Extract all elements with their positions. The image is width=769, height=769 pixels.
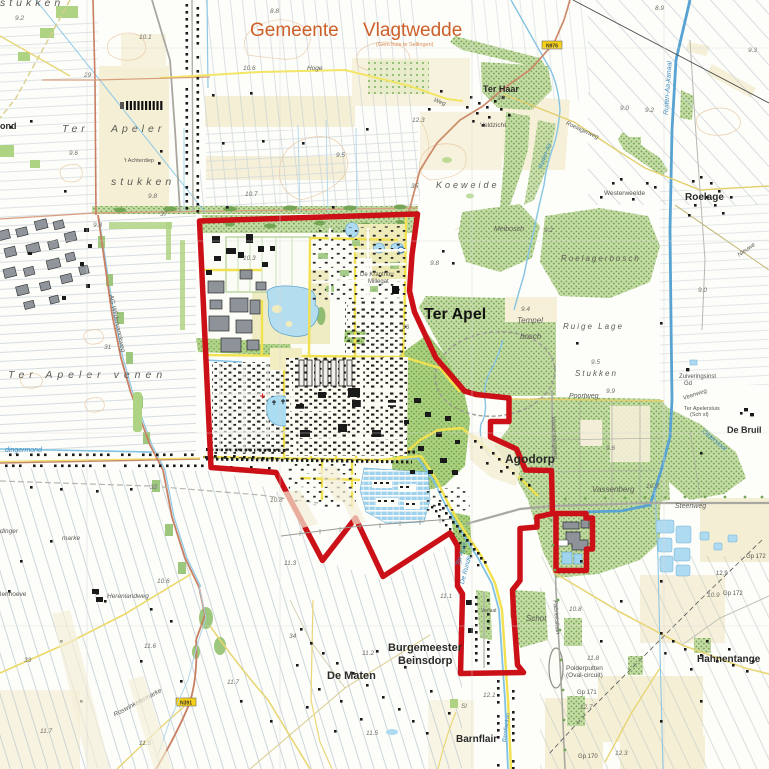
svg-text:N976: N976 [546, 44, 558, 50]
svg-text:Ruige Lage: Ruige Lage [563, 322, 624, 331]
svg-text:De Kranthou: De Kranthou [360, 272, 394, 278]
svg-text:12.1: 12.1 [483, 692, 496, 699]
svg-text:Gp 170: Gp 170 [578, 754, 598, 760]
svg-text:stukken: stukken [111, 176, 175, 188]
svg-text:9.6: 9.6 [69, 150, 78, 157]
svg-text:Roelage: Roelage [685, 192, 724, 203]
svg-text:(Sch sl): (Sch sl) [690, 412, 709, 418]
svg-text:11.8: 11.8 [587, 655, 600, 662]
svg-text:11.7: 11.7 [40, 728, 53, 735]
svg-text:12.7: 12.7 [580, 704, 593, 711]
svg-text:9.2: 9.2 [15, 15, 24, 22]
svg-text:9.2: 9.2 [645, 107, 654, 114]
svg-text:Roelagerbosch: Roelagerbosch [561, 254, 641, 263]
svg-text:bosch: bosch [520, 332, 542, 341]
svg-text:29: 29 [83, 72, 92, 79]
svg-text:Sl: Sl [461, 703, 467, 710]
svg-text:stukken: stukken [0, 0, 64, 9]
svg-text:37: 37 [160, 211, 168, 218]
svg-text:Koeweide: Koeweide [436, 180, 500, 190]
svg-text:9.0: 9.0 [620, 105, 629, 112]
svg-text:9.5: 9.5 [591, 359, 600, 366]
svg-text:Westerweelde: Westerweelde [604, 190, 645, 197]
svg-text:Ter Haar: Ter Haar [483, 84, 519, 94]
svg-text:Agodorp: Agodorp [505, 452, 555, 466]
svg-text:dinger: dinger [0, 528, 19, 535]
svg-text:(Gem huis te Sellingen): (Gem huis te Sellingen) [376, 42, 434, 48]
svg-text:10.3: 10.3 [243, 255, 256, 262]
svg-text:Gp 172: Gp 172 [723, 591, 743, 597]
svg-text:10.8: 10.8 [569, 606, 582, 613]
svg-text:10.6: 10.6 [157, 578, 170, 585]
svg-text:11.7: 11.7 [227, 679, 240, 686]
svg-text:10.8: 10.8 [270, 497, 283, 504]
svg-text:9.6: 9.6 [606, 445, 615, 452]
svg-text:10.7: 10.7 [245, 191, 258, 198]
svg-text:35: 35 [411, 183, 419, 190]
svg-text:Ter Apel: Ter Apel [424, 306, 486, 323]
svg-text:Stukken: Stukken [575, 369, 618, 378]
svg-text:Gp 172: Gp 172 [746, 554, 766, 560]
svg-text:De Maten: De Maten [327, 670, 376, 682]
svg-text:Gemeente: Gemeente [250, 20, 339, 41]
svg-text:Millegat: Millegat [368, 279, 389, 285]
svg-text:Hahnentange: Hahnentange [697, 654, 761, 665]
svg-text:Polderputten: Polderputten [566, 665, 603, 672]
svg-text:10.9: 10.9 [646, 483, 659, 490]
svg-text:12.3: 12.3 [412, 117, 425, 124]
svg-text:Verlaat: Verlaat [481, 608, 497, 614]
svg-text:lenhoeve: lenhoeve [0, 591, 27, 598]
svg-text:10.1: 10.1 [139, 34, 152, 41]
svg-text:Zuiveringsinst: Zuiveringsinst [679, 374, 716, 380]
svg-text:11.5: 11.5 [366, 730, 379, 737]
svg-text:33: 33 [24, 657, 32, 664]
svg-text:N391: N391 [180, 701, 192, 707]
svg-text:marke: marke [62, 535, 80, 542]
svg-text:11.2: 11.2 [362, 650, 375, 657]
svg-text:9.2: 9.2 [544, 227, 553, 234]
svg-text:Ter: Ter [62, 123, 89, 135]
svg-text:11.1: 11.1 [440, 593, 453, 600]
svg-text:Vassenberg: Vassenberg [592, 485, 635, 494]
svg-text:Beinsdorp: Beinsdorp [398, 655, 453, 667]
svg-text:32: 32 [150, 484, 158, 491]
svg-text:Schot: Schot [526, 614, 547, 623]
svg-text:Burgemeester: Burgemeester [388, 642, 463, 654]
svg-text:34: 34 [289, 633, 297, 640]
svg-text:8.8: 8.8 [270, 8, 279, 15]
svg-text:Veldzicht: Veldzicht [480, 122, 506, 129]
svg-text:Gp 171: Gp 171 [577, 690, 597, 696]
svg-text:9.8: 9.8 [430, 260, 439, 267]
svg-text:9.8: 9.8 [148, 193, 157, 200]
svg-text:Gd: Gd [684, 381, 692, 387]
svg-text:dingermond: dingermond [5, 447, 43, 454]
svg-text:10.6: 10.6 [243, 65, 256, 72]
svg-text:De Bruil: De Bruil [727, 425, 762, 435]
svg-text:(Oval-circuit): (Oval-circuit) [566, 672, 603, 679]
svg-text:9.9: 9.9 [606, 388, 615, 395]
svg-text:9.8: 9.8 [93, 222, 102, 229]
svg-text:8.9: 8.9 [655, 5, 664, 12]
svg-text:Apeler: Apeler [110, 123, 165, 135]
svg-text:Barnflair: Barnflair [456, 734, 497, 745]
svg-text:9.5: 9.5 [336, 152, 345, 159]
svg-text:36: 36 [402, 324, 410, 331]
svg-text:10.9: 10.9 [707, 592, 720, 599]
svg-text:Poortweg: Poortweg [569, 393, 599, 400]
svg-text:'t Achterdiep: 't Achterdiep [124, 158, 154, 164]
svg-text:Meibosch: Meibosch [494, 226, 524, 233]
svg-text:11.6: 11.6 [144, 643, 157, 650]
svg-text:Herenlandweg: Herenlandweg [107, 593, 149, 600]
svg-text:Ter Apeler venen: Ter Apeler venen [8, 369, 167, 381]
svg-text:12.3: 12.3 [615, 750, 628, 757]
svg-text:31: 31 [104, 344, 112, 351]
svg-text:9.4: 9.4 [521, 306, 530, 313]
svg-text:34: 34 [497, 95, 505, 102]
svg-text:Vlagtwedde: Vlagtwedde [363, 20, 462, 41]
svg-text:Tempel: Tempel [517, 316, 543, 325]
svg-text:11.3: 11.3 [284, 560, 297, 567]
svg-text:Steenweg: Steenweg [675, 503, 706, 510]
svg-text:9.0: 9.0 [698, 287, 707, 294]
svg-text:Hoge: Hoge [307, 65, 323, 72]
svg-text:ond: ond [0, 121, 17, 131]
